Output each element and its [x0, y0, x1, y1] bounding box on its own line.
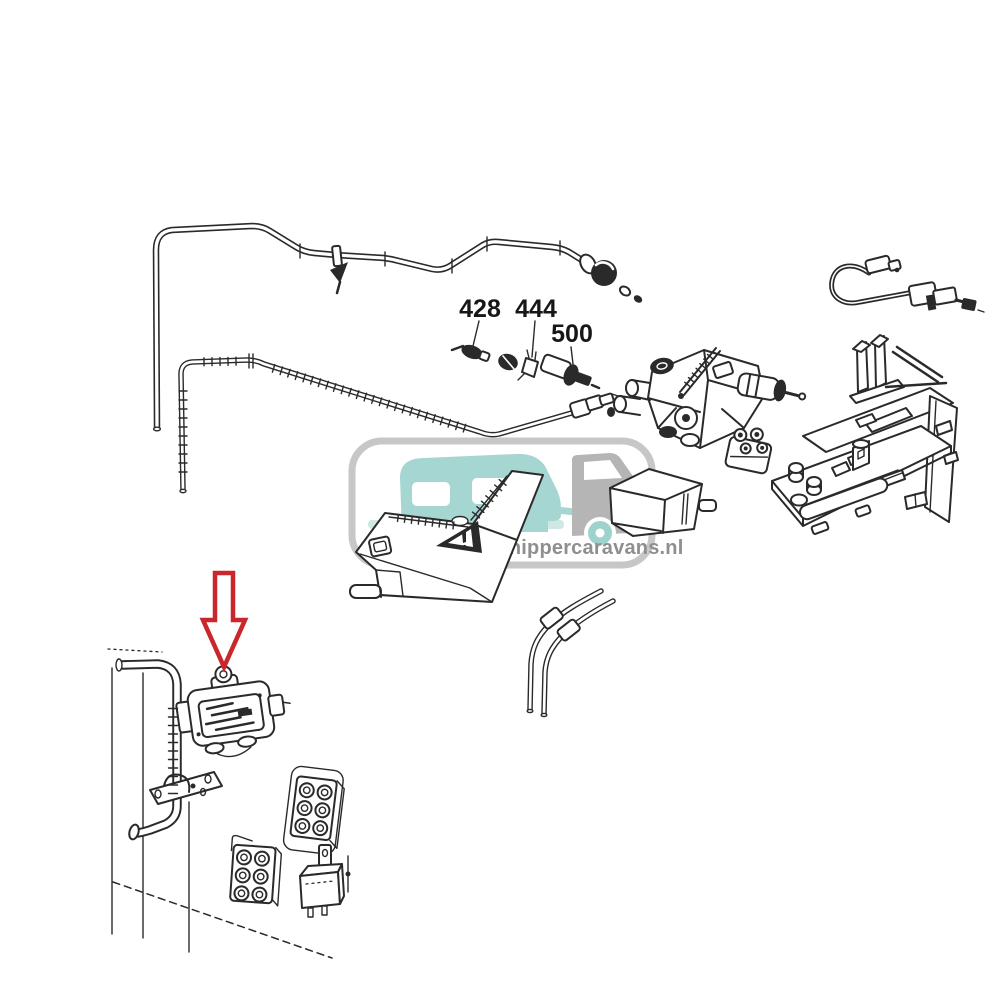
cover-foot [350, 585, 381, 598]
motor-shaft [699, 500, 716, 511]
part-label-500: 500 [551, 320, 593, 348]
exploded-parts-diagram: Schippercaravans.nl [0, 0, 1000, 1000]
part-label-444: 444 [515, 295, 557, 323]
caravan-window [412, 482, 450, 506]
cover-hinge-tab [369, 536, 392, 557]
part-label-428: 428 [459, 295, 501, 323]
